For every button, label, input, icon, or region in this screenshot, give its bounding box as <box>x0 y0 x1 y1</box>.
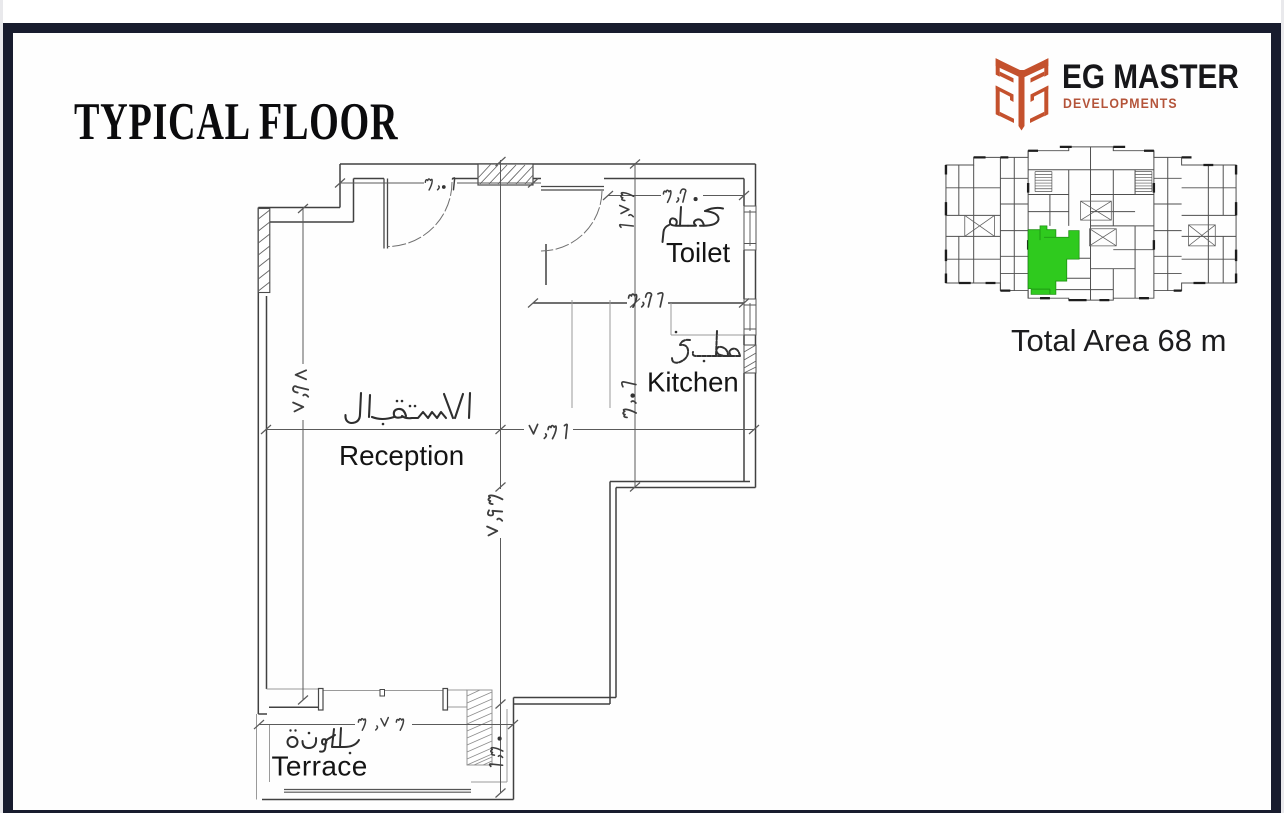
svg-text:Kitchen: Kitchen <box>647 367 739 398</box>
svg-text:Toilet: Toilet <box>666 237 731 268</box>
svg-text:Reception: Reception <box>339 440 464 471</box>
svg-text:Terrace: Terrace <box>272 751 368 782</box>
